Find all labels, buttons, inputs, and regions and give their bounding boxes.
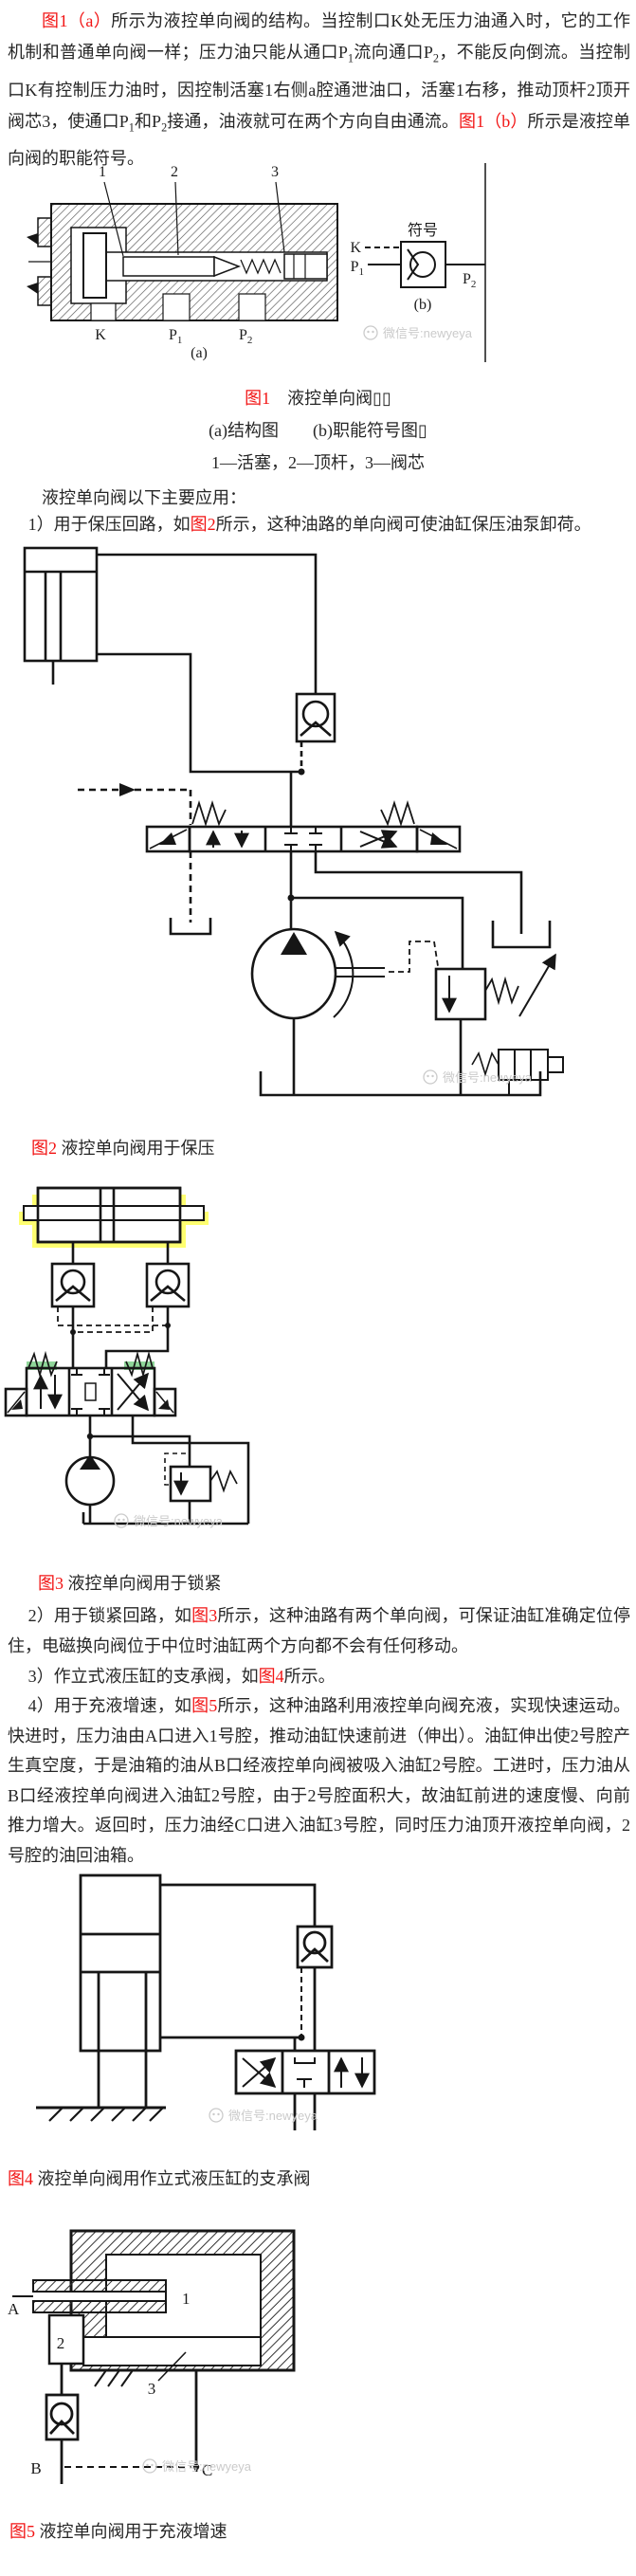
symbol-label-k: K bbox=[350, 240, 361, 256]
double-rod-cylinder bbox=[24, 1188, 204, 1242]
figure4-support-valve-circuit bbox=[0, 1873, 636, 2157]
cylinder-cross-section bbox=[12, 2231, 294, 2386]
chamber-2 bbox=[49, 2315, 83, 2364]
ground bbox=[36, 2108, 166, 2121]
port-label-p2: P2 bbox=[239, 327, 252, 346]
figure3-caption: 图3 液控单向阀用于锁紧 bbox=[38, 1570, 222, 1595]
part-label-1: 1 bbox=[99, 164, 106, 180]
figure1-caption-title: 图1 液控单向阀▯▯ bbox=[0, 382, 636, 414]
pilot-cross-line bbox=[58, 1306, 168, 1325]
figure3-locking-circuit bbox=[0, 1185, 636, 1536]
line-cap-side bbox=[160, 1885, 315, 1927]
figure5-prefill-circuit: A 1 2 3 B C bbox=[0, 2223, 636, 2503]
spring-icon bbox=[192, 803, 226, 824]
item-1-paragraph: 1）用于保压回路，如图2所示，这种油路的单向阀可使油缸保压油泵卸荷。 bbox=[8, 509, 630, 540]
item-4-paragraph: 4）用于充液增速，如图5所示，这种油路利用液控单向阀充液，实现快速运动。快进时，… bbox=[8, 1691, 630, 1871]
pilot-cross-line bbox=[73, 1306, 153, 1332]
spring-icon bbox=[381, 803, 414, 824]
vertical-cylinder bbox=[81, 1875, 160, 2108]
bolt-icon bbox=[27, 283, 38, 294]
spring-icon bbox=[485, 979, 518, 1002]
label-b: B bbox=[30, 2459, 41, 2477]
label-a: A bbox=[8, 2300, 20, 2318]
tank-return-line bbox=[316, 851, 521, 934]
pump bbox=[66, 1454, 114, 1524]
fig1-section-drawing bbox=[27, 182, 337, 320]
external-pilot-arrow bbox=[78, 783, 191, 825]
port-label-p1: P1 bbox=[169, 327, 182, 346]
sub-label-a: (a) bbox=[191, 345, 208, 361]
bolt-icon bbox=[27, 233, 38, 245]
port-label-k: K bbox=[95, 327, 106, 343]
label-3: 3 bbox=[148, 2380, 156, 2398]
pump bbox=[252, 929, 385, 1095]
watermark: 微信号:newyeya bbox=[114, 1511, 223, 1529]
push-rod bbox=[123, 257, 214, 276]
item-2-paragraph: 2）用于锁紧回路，如图3所示，这种油路有两个单向阀，可保证油缸准确定位停住，电磁… bbox=[8, 1600, 630, 1661]
line-rod-side bbox=[97, 654, 301, 772]
pilot-check-valve bbox=[298, 1927, 332, 1967]
hollow-rod bbox=[33, 2301, 166, 2312]
pilot-sense-line bbox=[389, 941, 438, 972]
hollow-rod bbox=[33, 2280, 166, 2292]
symbol-label-p1: P1 bbox=[351, 259, 364, 278]
wechat-icon bbox=[209, 2108, 224, 2123]
pilot-check-valve bbox=[46, 2395, 78, 2439]
watermark: 微信号:newyeya bbox=[423, 1068, 532, 1086]
spring-icon bbox=[210, 1471, 237, 1490]
figure2-caption: 图2 液控单向阀用于保压 bbox=[31, 1135, 215, 1160]
intro-paragraph: 图1（a）所示为液控单向阀的结构。当控制口K处无压力油通入时，它的工作机制和普通… bbox=[8, 6, 630, 174]
symbol-label-p2: P2 bbox=[463, 271, 476, 290]
symbol-title: 符号 bbox=[408, 222, 438, 239]
figure1-pilot-check-valve-structure: 1 2 3 K P1 P2 (a) 符号 K P1 P2 (b) bbox=[0, 161, 636, 384]
directional-valve-4-3 bbox=[147, 803, 460, 851]
fig1-symbol-labels: 符号 K P1 P2 (b) bbox=[350, 222, 476, 313]
part-label-2: 2 bbox=[171, 164, 178, 180]
sub-label-b: (b) bbox=[414, 297, 432, 313]
item-3-paragraph: 3）作立式液压缸的支承阀，如图4所示。 bbox=[8, 1661, 630, 1692]
pilot-check-valve-right bbox=[147, 1264, 189, 1306]
label-2: 2 bbox=[57, 2334, 65, 2352]
chamber-3 bbox=[83, 2337, 261, 2366]
figure5-caption: 图5 液控单向阀用于充液增速 bbox=[9, 2518, 227, 2543]
watermark: 微信号:newyeya bbox=[209, 2106, 318, 2124]
pilot-line bbox=[165, 1453, 186, 1485]
piston bbox=[83, 233, 106, 298]
pilot-check-valve-left bbox=[52, 1264, 94, 1306]
figure1-caption-sub: (a)结构图 (b)职能符号图▯ bbox=[0, 414, 636, 447]
arrow-icon bbox=[119, 783, 136, 796]
figure1-caption: 图1 液控单向阀▯▯ (a)结构图 (b)职能符号图▯ 1—活塞，2—顶杆，3—… bbox=[0, 382, 636, 479]
watermark: 微信号:newyeya bbox=[142, 2457, 251, 2475]
label-1: 1 bbox=[182, 2290, 191, 2308]
pilot-check-valve bbox=[297, 694, 335, 776]
watermark: 微信号:newyeya bbox=[363, 323, 472, 341]
figure1-caption-parts: 1—活塞，2—顶杆，3—阀芯 bbox=[0, 447, 636, 479]
wechat-icon bbox=[142, 2458, 157, 2474]
figure4-caption: 图4 液控单向阀用作立式液压缸的支承阀 bbox=[8, 2165, 311, 2190]
directional-valve-3pos bbox=[236, 2051, 374, 2093]
figure2-pressure-holding-circuit bbox=[0, 545, 636, 1114]
cylinder bbox=[25, 548, 97, 685]
article-page: 图1（a）所示为液控单向阀的结构。当控制口K处无压力油通入时，它的工作机制和普通… bbox=[0, 0, 636, 2576]
part-label-3: 3 bbox=[271, 164, 279, 180]
adjust-arrow bbox=[519, 955, 555, 1016]
line-cap-side bbox=[97, 555, 316, 694]
wechat-icon bbox=[363, 325, 378, 340]
wechat-icon bbox=[423, 1069, 438, 1085]
wechat-icon bbox=[114, 1513, 129, 1528]
